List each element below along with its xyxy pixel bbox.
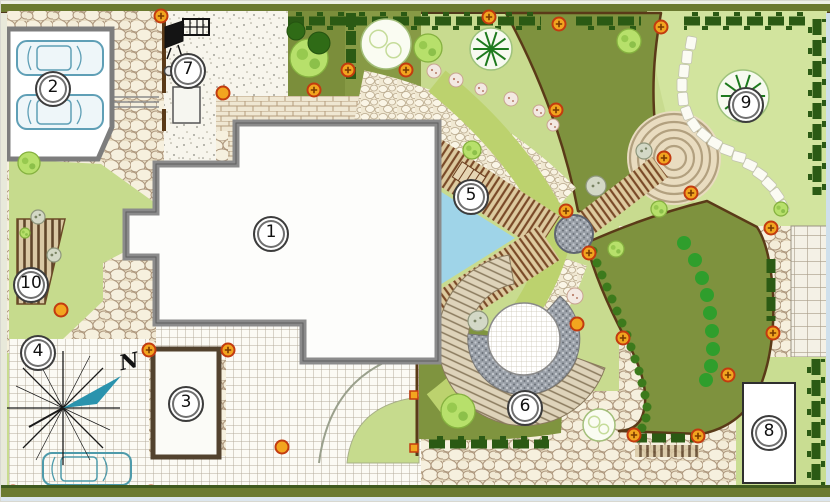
lamp-icon [222, 344, 235, 357]
gray-plant-icon [31, 210, 45, 224]
gray-plant-icon [468, 311, 488, 331]
plant-dot [699, 373, 713, 387]
shrub-edge [603, 283, 612, 292]
lamp-icon [483, 11, 496, 24]
landscape-site-plan: 1 2 3 4 5 6 7 8 9 10 N const data = JSON… [0, 0, 830, 502]
stepping-stone [685, 36, 697, 51]
lamp-icon [217, 87, 230, 100]
shrub-edge [618, 319, 627, 328]
lamp-icon [583, 247, 596, 260]
lamp-icon [571, 318, 584, 331]
plant-dot [700, 288, 714, 302]
plant-dot [705, 324, 719, 338]
white-plant-icon [361, 19, 411, 69]
pink-plant-icon [427, 64, 441, 78]
white-plant-icon [583, 409, 615, 441]
shrub-edge [613, 307, 622, 316]
marker-9: 9 [728, 87, 764, 123]
shrub-edge [635, 367, 644, 376]
marker-3: 3 [168, 386, 204, 422]
lamp-icon [55, 304, 68, 317]
lamp-icon [400, 64, 413, 77]
marker-1: 1 [253, 216, 289, 252]
lamp-icon [143, 344, 156, 357]
lime-plant-icon [608, 241, 624, 257]
shrub-edge [631, 355, 640, 364]
stepping-stone [677, 92, 688, 106]
marker-8: 8 [751, 415, 787, 451]
lamp-icon [155, 10, 168, 23]
lime-plant-icon [441, 394, 475, 428]
lamp-icon [553, 18, 566, 31]
pink-plant-icon [449, 73, 463, 87]
lime-plant-icon [414, 34, 442, 62]
lamp-icon [655, 21, 668, 34]
shrub-edge [593, 259, 602, 268]
palm-plant-icon [470, 28, 512, 70]
shrub-edge [642, 414, 651, 423]
plant-dot [706, 342, 720, 356]
lamp-icon [550, 104, 563, 117]
gray-plant-icon [47, 248, 61, 262]
bench [173, 87, 200, 123]
dark-plant-icon [308, 32, 330, 54]
marker-4: 4 [20, 335, 56, 371]
lamp-icon [410, 391, 418, 399]
lamp-icon [617, 332, 630, 345]
marker-2: 2 [35, 71, 71, 107]
lamp-icon [308, 84, 321, 97]
stepping-stone [681, 50, 692, 64]
pink-plant-icon [567, 288, 583, 304]
pink-plant-icon [547, 119, 559, 131]
pink-plant-icon [504, 92, 518, 106]
gray-plant-icon [586, 176, 606, 196]
lamp-icon [560, 205, 573, 218]
shrub-edge [643, 403, 652, 412]
dark-plant-icon [287, 22, 305, 40]
plant-dot [703, 306, 717, 320]
marker-5: 5 [453, 179, 489, 215]
pink-plant-icon [475, 83, 487, 95]
lime-plant-icon [651, 201, 667, 217]
lamp-icon [692, 430, 705, 443]
shrub-edge [608, 295, 617, 304]
lime-plant-icon [774, 202, 788, 216]
pink-plant-icon [533, 105, 545, 117]
lamp-icon [685, 187, 698, 200]
stepping-stone [677, 79, 687, 92]
lime-plant-icon [617, 29, 641, 53]
lamp-icon [765, 222, 778, 235]
lime-plant-icon [20, 228, 30, 238]
lamp-icon [410, 444, 418, 452]
car-1 [17, 41, 103, 75]
lamp-icon [628, 429, 641, 442]
lamp-icon [342, 64, 355, 77]
marker-6: 6 [507, 390, 543, 426]
site-plan-svg [1, 1, 830, 501]
lamp-icon [722, 369, 735, 382]
stepping-stone [678, 64, 689, 78]
shrub-edge [641, 391, 650, 400]
plant-dot [704, 359, 718, 373]
marker-7: 7 [170, 53, 206, 89]
plant-dot [695, 271, 709, 285]
lime-plant-icon [18, 152, 40, 174]
lamp-icon [767, 327, 780, 340]
shrub-edge [638, 379, 647, 388]
shrub-edge [598, 271, 607, 280]
gray-plant-icon [636, 143, 652, 159]
marker-10: 10 [13, 267, 49, 303]
plant-dot [677, 236, 691, 250]
lamp-icon [276, 441, 289, 454]
shrub-edge [627, 343, 636, 352]
lime-plant-icon [463, 141, 481, 159]
tile-path-east [791, 226, 827, 357]
plant-dot [688, 253, 702, 267]
lamp-icon [658, 152, 671, 165]
